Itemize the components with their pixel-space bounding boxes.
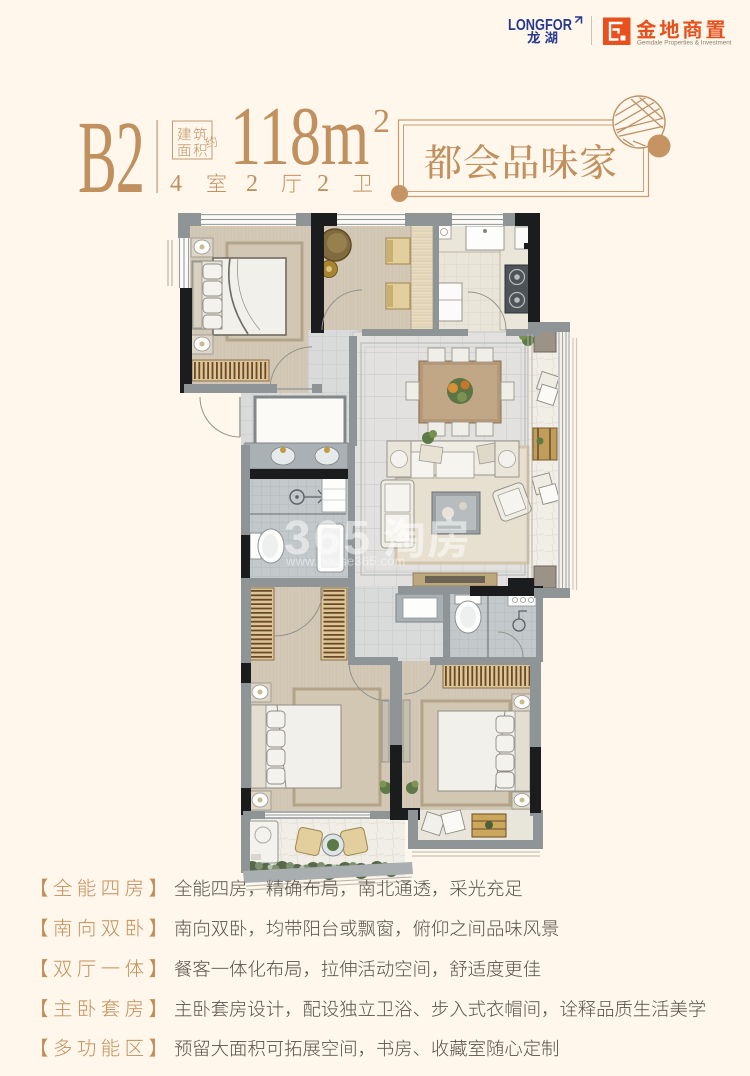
svg-text:B2: B2 — [78, 101, 144, 216]
svg-text:2: 2 — [317, 171, 329, 197]
svg-text:2: 2 — [373, 103, 390, 140]
svg-text:2: 2 — [246, 171, 258, 197]
svg-text:LONGFOR: LONGFOR — [508, 17, 572, 34]
svg-text:118m: 118m — [230, 89, 369, 182]
svg-text:Gemdale Properties & Investmen: Gemdale Properties & Investment — [637, 40, 732, 47]
svg-text:4: 4 — [170, 171, 182, 197]
svg-text:www.house365.com: www.house365.com — [285, 554, 406, 569]
